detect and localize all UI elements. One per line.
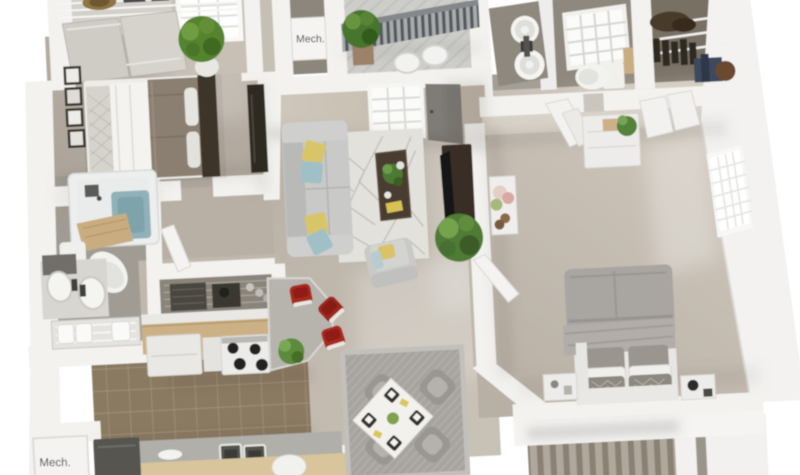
svg-text:Mech.: Mech. [39, 457, 70, 469]
svg-text:Mech.: Mech. [296, 33, 325, 45]
